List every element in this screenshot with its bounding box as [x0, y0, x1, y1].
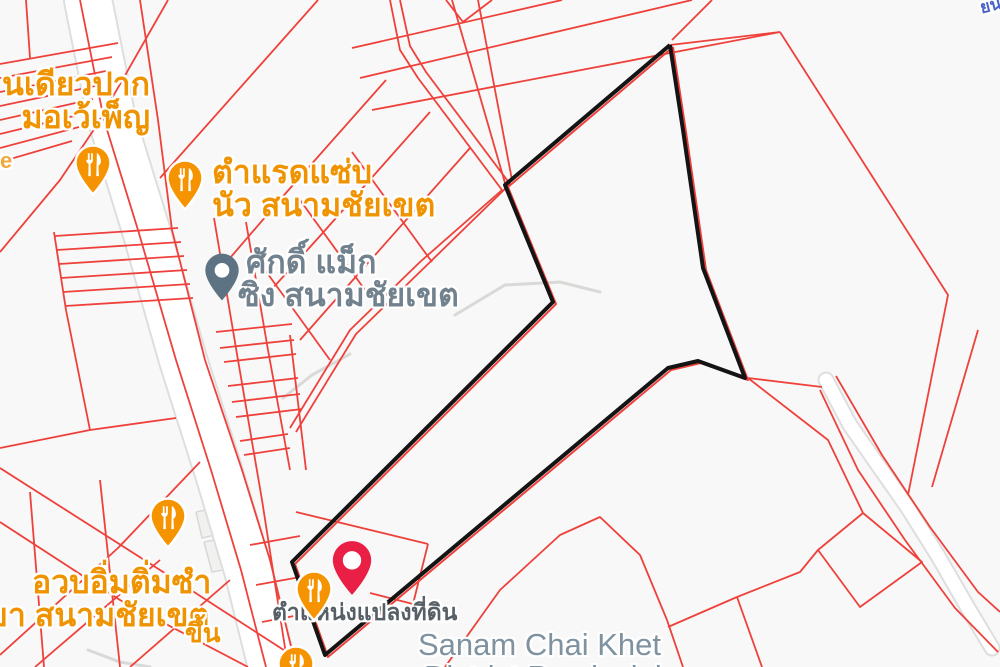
map-canvas[interactable]: นเดียวปาก มอเว้เพ็ญ e ตำแรดแซ่บ นัว สนาม…	[0, 0, 1000, 667]
district-label-line1: Sanam Chai Khet	[418, 629, 662, 661]
poi-label-tamrad-line1: ตำแรดแซ่บ	[212, 156, 435, 189]
poi-label-sakdi-line2: ซิง สนามชัยเขต	[238, 279, 459, 312]
street-label-fragment: e	[0, 150, 12, 173]
poi-label-fragment-khuen: ขึ้น	[185, 620, 221, 647]
restaurant-pin-icon[interactable]	[147, 496, 189, 550]
poi-label-topleft[interactable]: นเดียวปาก มอเว้เพ็ญ	[0, 68, 150, 135]
restaurant-pin-icon[interactable]	[164, 158, 206, 212]
poi-label-dimsum-line1: อวบอิ่มติ่มซำ	[32, 566, 211, 599]
restaurant-pin-icon[interactable]	[72, 143, 114, 197]
poi-label-tamrad-line2: นัว สนามชัยเขต	[212, 189, 435, 222]
poi-label-topleft-line2: มอเว้เพ็ญ	[0, 101, 150, 134]
restaurant-pin-icon[interactable]	[275, 644, 317, 667]
poi-label-dimsum-line2: ขา สนามชัยเขต	[0, 599, 211, 632]
poi-label-tamrad[interactable]: ตำแรดแซ่บ นัว สนามชัยเขต	[212, 156, 435, 223]
district-label-line2: District Provincial	[424, 661, 662, 667]
place-pin-icon[interactable]	[202, 252, 242, 302]
district-label[interactable]: Sanam Chai Khet District Provincial	[418, 629, 662, 667]
poi-label-sakdi-line1: ศักดิ์ แม็ก	[246, 246, 459, 279]
red-map-pin-icon[interactable]	[329, 538, 375, 598]
poi-label-topleft-line1: นเดียวปาก	[0, 68, 150, 101]
poi-label-sakdi[interactable]: ศักดิ์ แม็ก ซิง สนามชัยเขต	[246, 246, 459, 313]
